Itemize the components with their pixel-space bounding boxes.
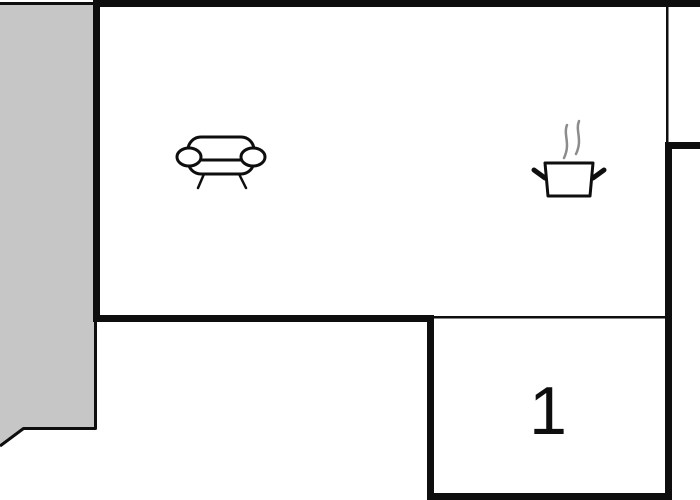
wall-top	[93, 0, 700, 7]
wall-left	[93, 0, 100, 322]
terrace-area	[0, 4, 96, 447]
wall-mid-horizontal	[93, 315, 433, 322]
partition-room1-top	[433, 316, 667, 319]
wall-topright-horizontal	[665, 142, 700, 149]
sofa-armrest-right	[241, 148, 265, 166]
floor-plan-svg: 1	[0, 0, 700, 500]
background	[0, 0, 700, 500]
sofa-armrest-left	[177, 148, 201, 166]
floor-plan: 1	[0, 0, 700, 500]
wall-right	[665, 142, 672, 500]
wall-room1-left	[427, 315, 434, 500]
wall-room1-bottom	[427, 493, 672, 500]
partition-topright	[666, 7, 669, 142]
pot-body	[545, 163, 593, 196]
room-1-label: 1	[529, 373, 567, 449]
